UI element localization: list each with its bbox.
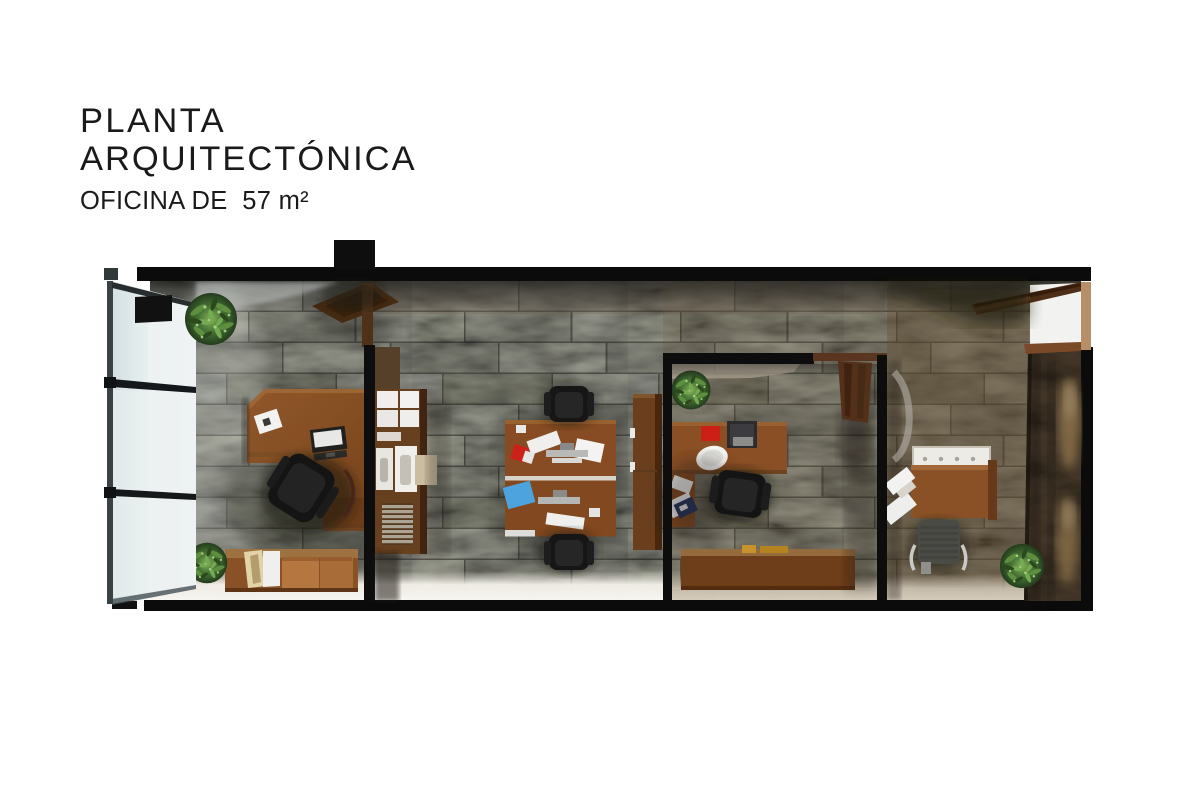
svg-text:ARQUITECTÓNICA: ARQUITECTÓNICA bbox=[80, 139, 417, 178]
svg-text:PLANTA: PLANTA bbox=[80, 102, 226, 140]
svg-text:OFICINA DE 57 m²: OFICINA DE 57 m² bbox=[80, 187, 309, 215]
